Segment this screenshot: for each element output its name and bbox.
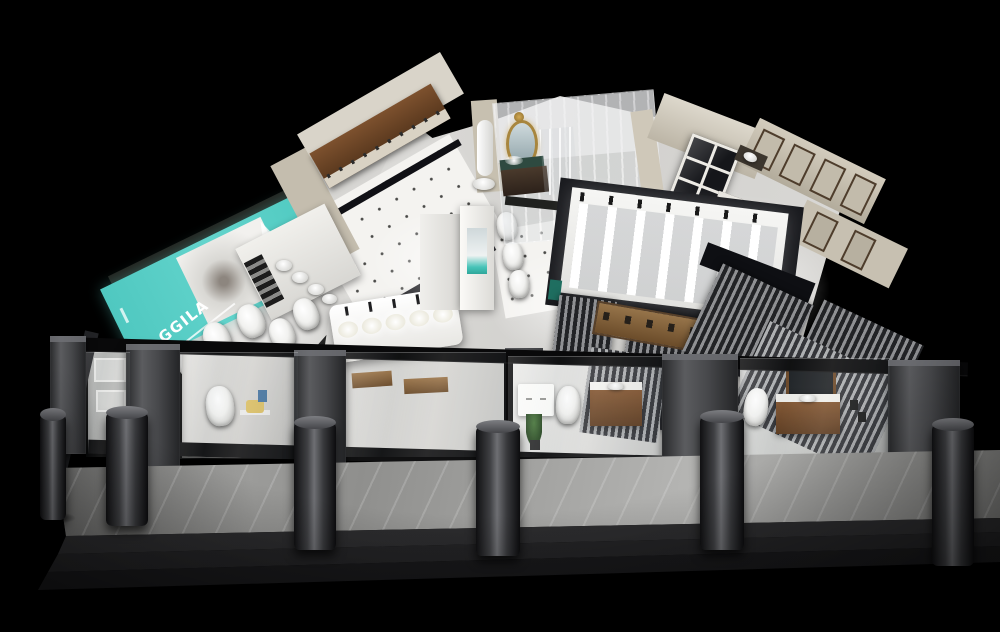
cylindrical-column	[932, 424, 974, 566]
illuminated-pad	[384, 313, 406, 332]
cylindrical-column	[476, 426, 520, 556]
mirror-crown-ornament	[514, 112, 524, 122]
column-cap	[106, 406, 148, 419]
wash-basin	[292, 272, 308, 283]
white-column-fixture	[477, 120, 493, 176]
poster-pillar	[460, 206, 494, 310]
wash-basin	[473, 178, 495, 190]
wash-basin	[308, 284, 324, 295]
display-column-white	[420, 214, 460, 310]
pillar-cap	[888, 360, 960, 366]
pillar-cap	[662, 354, 738, 360]
column-cap	[932, 418, 974, 431]
wash-basin	[322, 294, 337, 304]
alcove	[840, 230, 876, 271]
wash-basin	[742, 150, 758, 164]
faucet-item	[392, 299, 396, 308]
illuminated-pad	[408, 309, 430, 328]
alcove	[779, 143, 816, 186]
pillar-cap	[126, 344, 180, 350]
glass-pane	[508, 356, 662, 457]
alcove	[802, 211, 838, 252]
glass-pane	[740, 358, 890, 467]
column-cap	[40, 408, 66, 421]
cylindrical-column	[700, 416, 744, 550]
alcove	[840, 173, 877, 216]
column-cap	[294, 416, 336, 429]
shelf-items	[603, 312, 700, 337]
glass-pane	[180, 352, 298, 459]
wash-basin	[276, 260, 292, 271]
cylindrical-column	[106, 412, 148, 526]
faucet-item	[345, 306, 349, 315]
billboard-side-text-bar	[119, 308, 129, 324]
illuminated-pad	[337, 320, 359, 339]
illuminated-pad	[361, 316, 383, 335]
poster	[467, 228, 487, 274]
cylindrical-column	[40, 414, 66, 520]
showroom-render: GGILA	[0, 0, 1000, 632]
alcove	[809, 158, 846, 201]
column-cap	[476, 420, 520, 433]
cylindrical-column	[294, 422, 336, 550]
sink-glow	[505, 156, 523, 165]
column-cap	[700, 410, 744, 423]
pillar-cap	[50, 336, 86, 342]
pillar-cap	[294, 350, 346, 356]
faucet-item	[368, 302, 373, 312]
